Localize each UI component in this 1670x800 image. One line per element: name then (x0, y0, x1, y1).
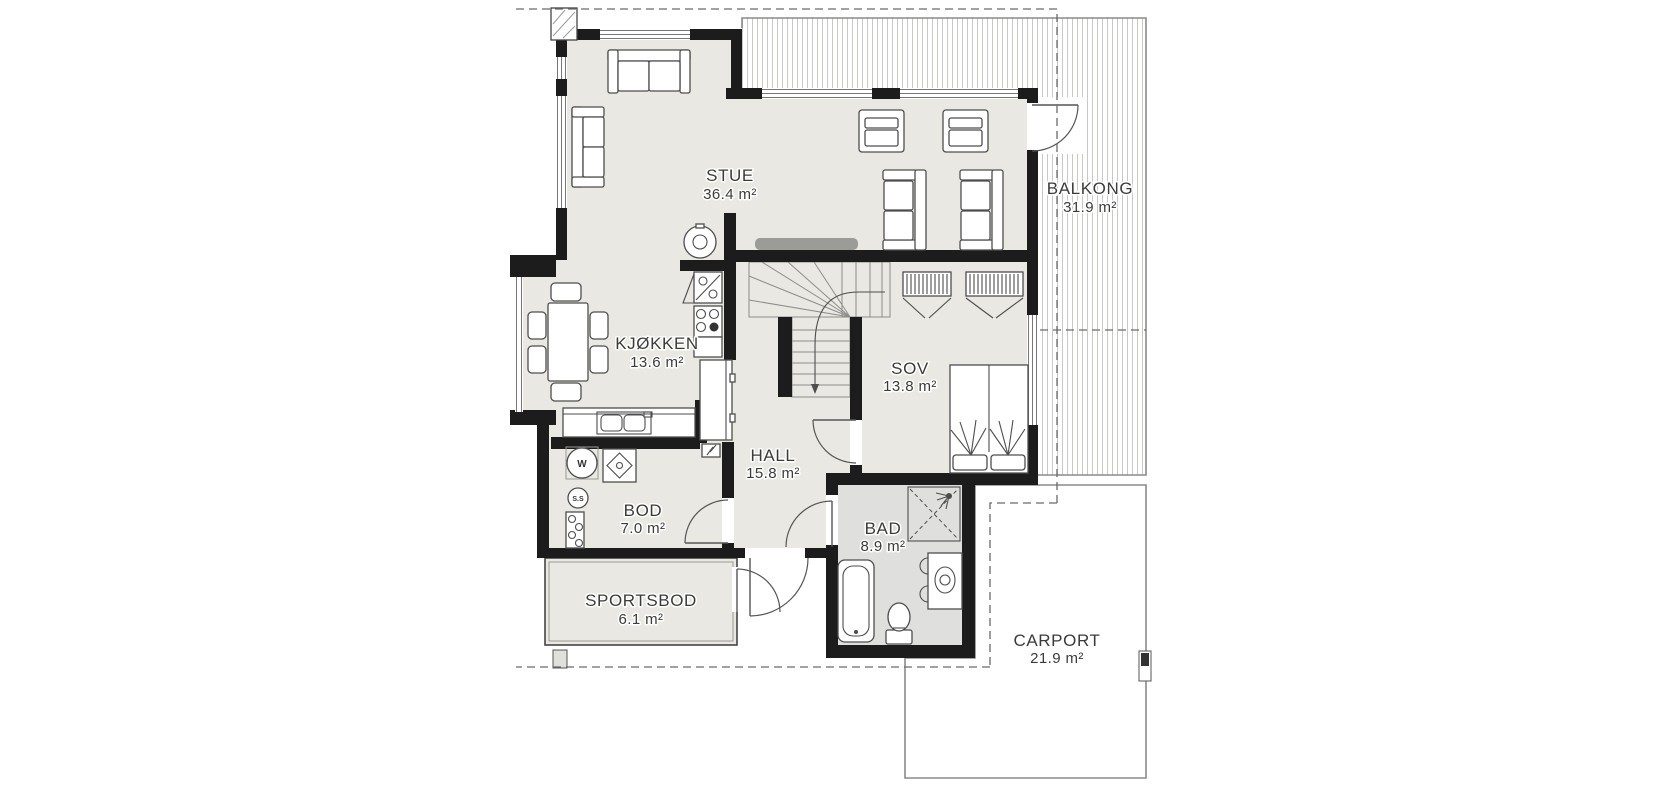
entrance-door (750, 558, 808, 616)
window-stue-top (600, 29, 690, 40)
armchair-1-icon (859, 110, 904, 152)
room-area-hall: 15.8 m² (746, 465, 800, 482)
sportsbod-door (737, 569, 780, 612)
water-heater-label: S.S (572, 496, 584, 503)
room-area-carport: 21.9 m² (1030, 650, 1084, 667)
window-stue-balcony-1 (762, 88, 872, 99)
loveseat-2-icon (960, 170, 1003, 250)
sideboard-icon (755, 238, 858, 250)
pipe-cabinet-icon (566, 512, 584, 548)
sofa-top-icon (608, 50, 690, 93)
room-label-stue: STUE (706, 166, 754, 185)
dryer-icon (603, 449, 636, 482)
chimney-icon (551, 8, 577, 40)
room-label-kjokken: KJØKKEN (615, 334, 699, 353)
room-label-balkong: BALKONG (1047, 179, 1133, 198)
window-sov (1027, 315, 1038, 425)
room-label-bod: BOD (624, 501, 663, 520)
bay-window-kitchen (515, 277, 523, 412)
loveseat-1-icon (883, 170, 926, 250)
room-area-balkong: 31.9 m² (1063, 199, 1117, 216)
window-stue-left-small (556, 57, 567, 79)
tall-cabinet-icon (700, 360, 735, 440)
armchair-2-icon (943, 110, 988, 152)
floorplan-canvas: W S.S (0, 0, 1670, 800)
washer-label: W (577, 459, 587, 470)
toilet-icon (886, 603, 912, 644)
room-area-sportsbod: 6.1 m² (619, 611, 664, 628)
porch-post (553, 650, 567, 668)
double-bed-icon (950, 365, 1028, 473)
bathtub-icon (838, 560, 874, 642)
kitchen-sink-counter-icon (563, 408, 695, 437)
room-label-bad: BAD (865, 519, 902, 538)
window-stue-balcony-2 (900, 88, 1018, 99)
floorplan-page: W S.S (0, 0, 1670, 800)
room-area-kjokken: 13.6 m² (630, 354, 684, 371)
stove-icon (694, 306, 722, 337)
sofa-left-icon (572, 107, 604, 187)
room-area-stue: 36.4 m² (703, 186, 757, 203)
room-area-bod: 7.0 m² (621, 520, 666, 537)
electrical-panel-icon (702, 444, 720, 457)
room-label-carport: CARPORT (1013, 631, 1100, 650)
room-area-sov: 13.8 m² (883, 378, 937, 395)
window-stue-left-large (556, 96, 567, 208)
room-label-sportsbod: SPORTSBOD (585, 591, 697, 610)
room-label-hall: HALL (751, 446, 796, 465)
room-area-bad: 8.9 m² (861, 538, 906, 555)
room-label-sov: SOV (891, 359, 929, 378)
water-heater-icon: S.S (568, 488, 588, 508)
